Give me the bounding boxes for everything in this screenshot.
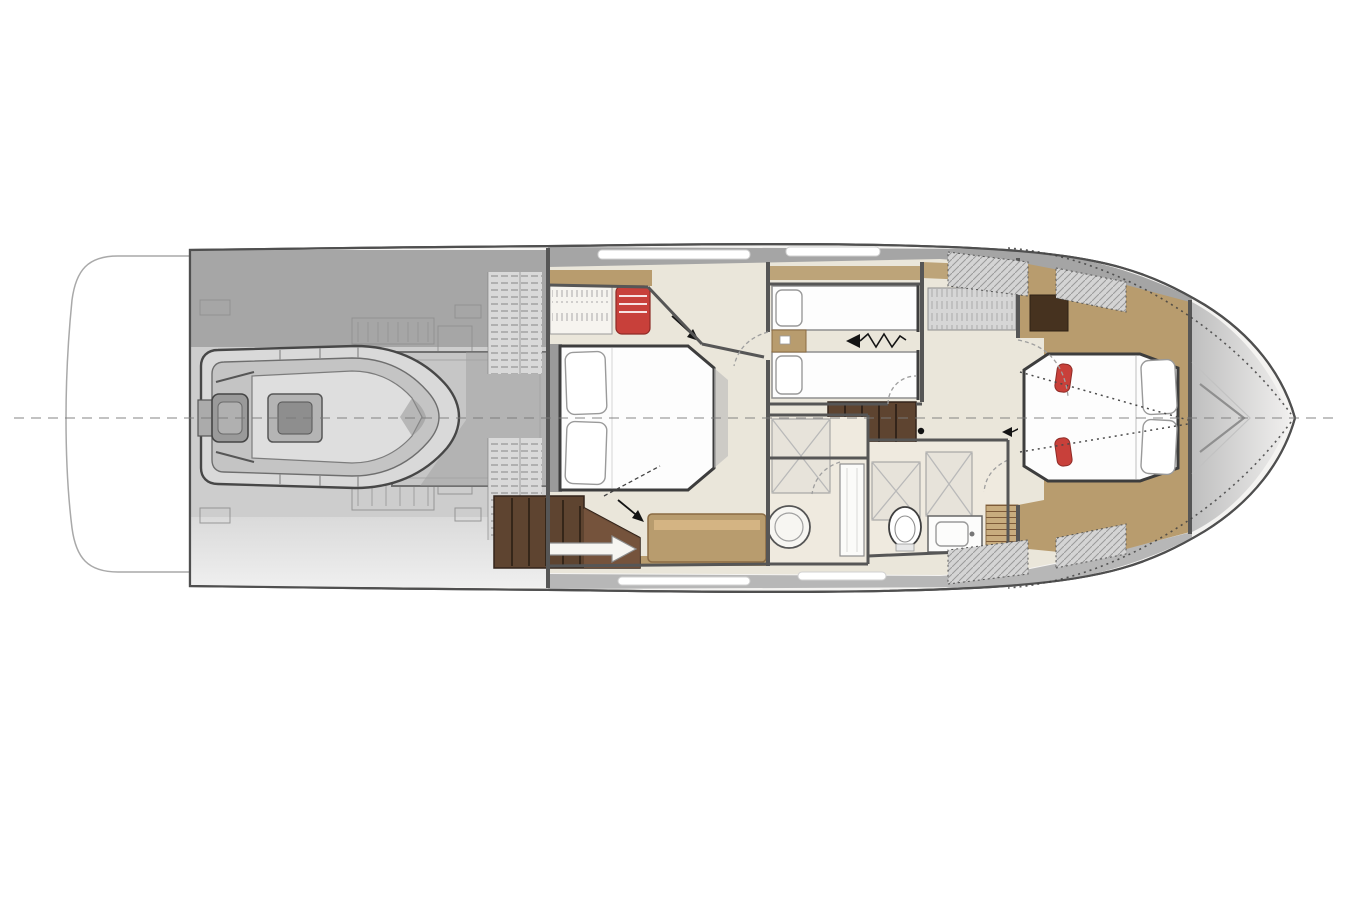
vanity-sink: [928, 516, 982, 552]
floor-plan-svg: [0, 0, 1350, 900]
master-sofa: [648, 514, 766, 562]
master-pillow-top: [565, 351, 607, 414]
yacht-floor-plan-page: [0, 0, 1350, 900]
slatted-cabinet: [928, 288, 1016, 330]
nightstand: [772, 330, 806, 352]
red-vanity-stool: [616, 286, 650, 334]
door-panel: [840, 464, 864, 556]
twin-pillow-upper: [776, 290, 802, 326]
master-pillow-bottom: [565, 421, 607, 484]
bathroom-aft: [768, 417, 868, 564]
vip-pillow-top: [1141, 359, 1178, 415]
vip-dark-wardrobe: [1030, 295, 1068, 331]
shower-panel-aft: [772, 419, 830, 493]
round-basin: [768, 506, 810, 548]
tender: [198, 346, 459, 488]
twin-pillow-lower: [776, 356, 802, 394]
vip-pillow-bottom: [1141, 419, 1178, 475]
swim-platform-shape: [66, 256, 190, 572]
hanging-wardrobe: [550, 286, 612, 334]
door-pivot-dot: [918, 428, 924, 434]
swim-platform: [66, 256, 190, 572]
